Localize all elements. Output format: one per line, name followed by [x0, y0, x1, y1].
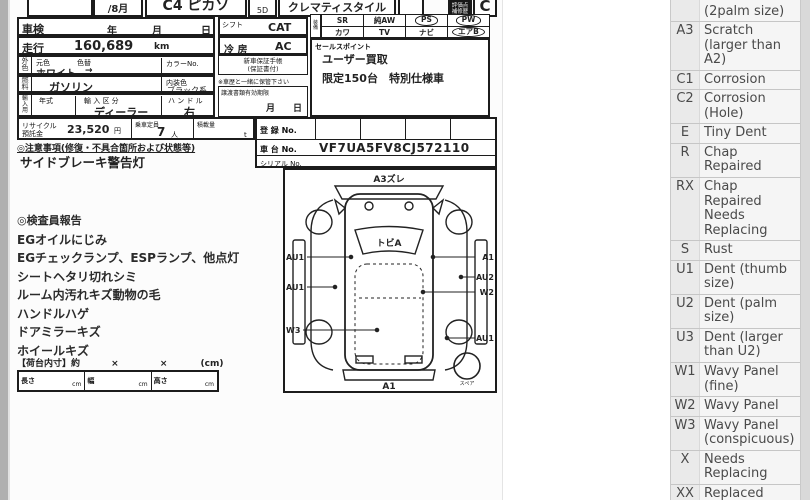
- recycle-label: リサイクル 預託金: [22, 122, 57, 139]
- cargo-height-label: 高さ: [154, 376, 168, 386]
- screenshot-root: /8月 C4 ピカソ 5D クレマティスタイル 評価点 補修歴 C 車検 年 月…: [0, 0, 810, 500]
- sales-point-line: ユーザー買取: [322, 51, 444, 70]
- shaken-month: 月: [152, 22, 162, 36]
- legend-code: W2: [671, 397, 700, 416]
- cargo-x1: ×: [111, 359, 119, 369]
- legend-row: W1Wavy Panel (fine): [671, 363, 800, 397]
- keep-note: ※車歴と一緒に保管下さい: [218, 77, 308, 86]
- legend-desc: Tiny Dent: [700, 124, 800, 143]
- recycle-unit: 円: [114, 126, 121, 136]
- row-fuel: 燃 料 ガソリン 内装色 ブラック系: [17, 75, 215, 93]
- cargo-x2: ×: [160, 359, 168, 369]
- equipment-item-label: エアB: [452, 27, 485, 37]
- legend-code: X: [671, 451, 700, 484]
- page-gutter: [0, 0, 10, 500]
- capacity-unit: 人: [171, 130, 178, 140]
- diagram-label-right-1: AU2: [476, 273, 494, 282]
- car-rear-bumper: [343, 370, 435, 380]
- diagram-label-right-2: W2: [480, 288, 494, 297]
- legend-code: E: [671, 124, 700, 143]
- legend-desc: Chap Repaired: [700, 144, 800, 177]
- legend-row: U1Dent (thumb size): [671, 261, 800, 295]
- interior-color-value: ブラック系: [167, 85, 207, 93]
- inspector-line: EGチェックランプ、ESPランプ、他点灯: [17, 249, 239, 268]
- equipment-item-label: ナビ: [419, 27, 434, 38]
- inspector-lines: EGオイルにじみEGチェックランプ、ESPランプ、他点灯シートヘタリ切れシミルー…: [17, 231, 239, 361]
- spare-tire-label: スペア: [460, 381, 475, 387]
- equipment-row: SR純AWPSPW: [321, 15, 489, 26]
- equipment-grid: 装備 SR純AWPSPWカワTVナビエアB: [310, 14, 490, 38]
- cargo-width-cell: 幅 cm: [85, 372, 151, 390]
- legend-row: A2Scratch (2palm size): [671, 0, 800, 22]
- diagram-label-left-1: AU1: [286, 283, 304, 292]
- legend-row: SRust: [671, 241, 800, 261]
- legend-code: U2: [671, 295, 700, 328]
- sales-point-line: 限定150台 特別仕様車: [322, 70, 444, 89]
- legend-row: W3Wavy Panel (conspicuous): [671, 417, 800, 451]
- diagram-windshield-label: トビA: [377, 237, 402, 249]
- legend-code: C1: [671, 71, 700, 90]
- equipment-cells: SR純AWPSPWカワTVナビエアB: [321, 15, 489, 37]
- legend-desc: Dent (larger than U2): [700, 329, 800, 362]
- equipment-item-label: TV: [379, 28, 390, 37]
- cargo-boxes: 長さ cm 幅 cm 高さ cm: [17, 370, 219, 392]
- mileage-unit: km: [154, 42, 169, 52]
- handle-value: 右: [184, 104, 195, 117]
- legend-code: U1: [671, 261, 700, 294]
- right-front-wheel: [446, 210, 472, 234]
- transfer-box: 譲渡書類有効期限 月 日: [218, 86, 308, 117]
- capacity-value: 7: [157, 125, 165, 139]
- legend-row: ETiny Dent: [671, 124, 800, 144]
- legend-row: W2Wavy Panel: [671, 397, 800, 417]
- header-model: C4 ピカソ: [145, 0, 247, 17]
- shaken-year: 年: [107, 22, 117, 36]
- scrollbar-track[interactable]: [801, 0, 810, 500]
- damage-diagram-box: A3ズレ トビA AU1 AU1 W3 A1 AU2 W2 AU1 A1 スペア: [283, 168, 497, 393]
- aircon-value: AC: [275, 40, 292, 53]
- serial-no-label: シリアル No.: [260, 159, 302, 168]
- equipment-item-label: 純AW: [374, 15, 395, 26]
- mileage-value: 160,689: [74, 39, 133, 54]
- cargo-length-label: 長さ: [21, 376, 35, 386]
- legend-row: XNeeds Replacing: [671, 451, 800, 485]
- diagram-label-right-0: A1: [482, 253, 494, 262]
- row-import: 輸 入 用 年式 輸 入 区 分 ディーラー ハ ン ド ル 右: [17, 93, 215, 117]
- chassis-no-row: 車 台 No. VF7UA5FV8CJ572110: [257, 140, 495, 156]
- inspector-line: シートヘタリ切れシミ: [17, 268, 239, 287]
- load-unit: t: [244, 131, 247, 139]
- equipment-item-label: PW: [456, 15, 482, 25]
- row-exterior-color: 外 色 元色 色替 ホワイト → カラーNo.: [17, 55, 215, 75]
- equipment-label: 装備: [311, 15, 321, 37]
- equipment-item-カワ: カワ: [321, 26, 363, 38]
- legend-desc: Wavy Panel: [700, 397, 800, 416]
- legend-row: RChap Repaired: [671, 144, 800, 178]
- equipment-item-ナビ: ナビ: [405, 26, 447, 38]
- legend-code: A2: [671, 0, 700, 21]
- legend-desc: Dent (palm size): [700, 295, 800, 328]
- equipment-item-SR: SR: [321, 15, 363, 26]
- shaken-day: 日: [201, 22, 211, 36]
- header-month: /8月: [93, 0, 143, 17]
- legend-row: RXChap Repaired Needs Replacing: [671, 178, 800, 241]
- diagram-label-left-2: W3: [286, 326, 300, 335]
- cargo-title-row: 【荷台内寸】約 × × (cm): [17, 356, 223, 369]
- spare-tire: [454, 353, 480, 379]
- damage-legend-table: A2Scratch (2palm size)A3Scratch (larger …: [670, 0, 801, 500]
- cargo-width-label: 幅: [87, 376, 94, 386]
- legend-desc: Replaced: [700, 485, 800, 500]
- legend-code: C2: [671, 90, 700, 123]
- serial-no-row: シリアル No.: [257, 156, 495, 168]
- shift-value: CAT: [268, 21, 291, 34]
- legend-code: XX: [671, 485, 700, 500]
- car-body: [345, 194, 433, 370]
- chassis-no-value: VF7UA5FV8CJ572110: [319, 141, 470, 155]
- fuel-value: ガソリン: [49, 79, 93, 93]
- diagram-label-left-0: AU1: [286, 253, 304, 262]
- cargo-title: 【荷台内寸】約: [17, 359, 80, 369]
- equipment-item-PS: PS: [405, 15, 447, 26]
- legend-desc: Scratch (2palm size): [700, 0, 800, 21]
- inspector-line: ハンドルハゲ: [17, 305, 239, 324]
- legend-row: U2Dent (palm size): [671, 295, 800, 329]
- import-class-value: ディーラー: [94, 104, 148, 117]
- mileage-label: 走行: [22, 40, 44, 55]
- right-door-panel: [445, 200, 467, 370]
- legend-row: C2Corrosion (Hole): [671, 90, 800, 124]
- inspector-line: ドアミラーキズ: [17, 323, 239, 342]
- legend-row: U3Dent (larger than U2): [671, 329, 800, 363]
- equipment-item-TV: TV: [363, 26, 405, 38]
- shaken-label: 車検: [22, 21, 44, 36]
- legend-code: A3: [671, 22, 700, 70]
- sales-point-box: セールスポイント ユーザー買取限定150台 特別仕様車: [310, 38, 490, 117]
- chassis-no-label: 車 台 No.: [260, 144, 297, 155]
- legend-row: C1Corrosion: [671, 71, 800, 91]
- equipment-item-label: SR: [337, 16, 348, 25]
- cargo-height-cell: 高さ cm: [152, 372, 217, 390]
- row-recycle: リサイクル 預託金 23,520 円 乗車定員 7 人 積載量 t: [17, 117, 255, 140]
- equipment-item-label: PS: [415, 15, 438, 25]
- model-year-label: 年式: [39, 96, 53, 106]
- diagram-bottom-label: A1: [382, 382, 395, 391]
- legend-desc: Chap Repaired Needs Replacing: [700, 178, 800, 240]
- legend-desc: Dent (thumb size): [700, 261, 800, 294]
- row-shift: シフト CAT: [218, 17, 308, 36]
- reg-no-row: 登 録 No.: [257, 119, 495, 140]
- registration-block: 登 録 No. 車 台 No. VF7UA5FV8CJ572110 シリアル N…: [255, 117, 497, 168]
- import-label: 輸 入 用: [19, 95, 32, 115]
- legend-code: U3: [671, 329, 700, 362]
- legend-code: W3: [671, 417, 700, 450]
- equipment-item-エアB: エアB: [447, 26, 489, 38]
- row-aircon: 冷 房 AC: [218, 36, 308, 55]
- cargo-length-cell: 長さ cm: [19, 372, 85, 390]
- right-rear-wheel: [446, 320, 472, 344]
- legend-desc: Needs Replacing: [700, 451, 800, 484]
- legend-row: A3Scratch (larger than A2): [671, 22, 800, 71]
- left-door-panel: [311, 200, 333, 370]
- inspector-report: ◎検査員報告 EGオイルにじみEGチェックランプ、ESPランプ、他点灯シートヘタ…: [17, 212, 239, 360]
- transfer-label: 譲渡書類有効期限: [221, 88, 269, 97]
- aircon-label: 冷 房: [224, 41, 247, 55]
- inspector-line: EGオイルにじみ: [17, 231, 239, 250]
- right-mirror: [433, 200, 443, 214]
- cargo-cm: (cm): [201, 359, 224, 369]
- equipment-item-PW: PW: [447, 15, 489, 26]
- auction-sheet: /8月 C4 ピカソ 5D クレマティスタイル 評価点 補修歴 C 車検 年 月…: [10, 0, 503, 500]
- car-interior-outline: [355, 264, 423, 364]
- color-no-label: カラーNo.: [161, 58, 215, 75]
- color-value: ホワイト: [36, 65, 76, 75]
- shift-label: シフト: [222, 20, 243, 30]
- color-arrow: →: [85, 66, 93, 75]
- exterior-color-label: 外 色: [19, 57, 32, 73]
- row-shaken: 車検 年 月 日: [17, 17, 215, 36]
- legend-desc: Scratch (larger than A2): [700, 22, 800, 70]
- legend-code: S: [671, 241, 700, 260]
- legend-desc: Wavy Panel (fine): [700, 363, 800, 396]
- inspector-line: ルーム内汚れキズ動物の毛: [17, 286, 239, 305]
- legend-code: W1: [671, 363, 700, 396]
- legend-code: RX: [671, 178, 700, 240]
- left-rear-wheel: [306, 320, 332, 344]
- recycle-value: 23,520: [67, 123, 109, 136]
- legend-desc: Corrosion (Hole): [700, 90, 800, 123]
- equipment-row: カワTVナビエアB: [321, 26, 489, 38]
- legend-desc: Wavy Panel (conspicuous): [700, 417, 800, 450]
- car-diagram: A3ズレ トビA AU1 AU1 W3 A1 AU2 W2 AU1 A1 スペア: [285, 170, 495, 391]
- diagram-label-right-3: AU1: [476, 334, 494, 343]
- legend-desc: Rust: [700, 241, 800, 260]
- inspector-title: ◎検査員報告: [17, 212, 239, 231]
- sales-point-lines: ユーザー買取限定150台 特別仕様車: [322, 51, 444, 88]
- left-mirror: [335, 200, 345, 214]
- legend-desc: Corrosion: [700, 71, 800, 90]
- row-mileage: 走行 160,689 km: [17, 36, 215, 55]
- legend-code: R: [671, 144, 700, 177]
- reg-no-label: 登 録 No.: [260, 125, 297, 136]
- legend-row: XXReplaced: [671, 485, 800, 500]
- equipment-item-label: カワ: [335, 27, 350, 38]
- fuel-label: 燃 料: [19, 77, 32, 91]
- warranty-box: 新車保証手帳 (保証書付): [218, 55, 308, 75]
- left-front-wheel: [306, 210, 332, 234]
- header-doors: 5D: [248, 0, 277, 17]
- equipment-item-純AW: 純AW: [363, 15, 405, 26]
- transfer-value: 月 日: [266, 101, 302, 114]
- header-empty-box: [27, 0, 93, 17]
- diagram-front-label: A3ズレ: [373, 173, 404, 185]
- notes-line: サイドブレーキ警告灯: [20, 152, 145, 171]
